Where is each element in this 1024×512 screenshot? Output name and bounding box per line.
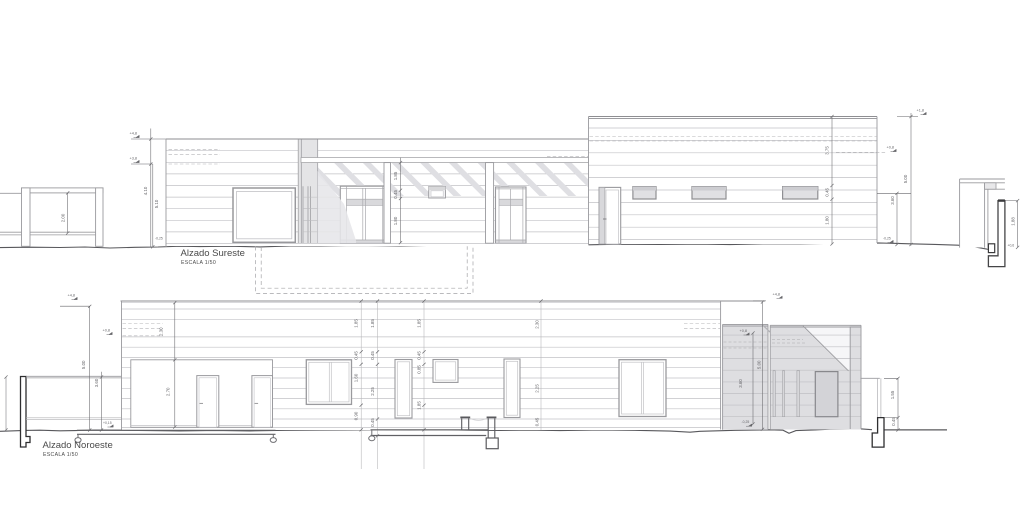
svg-text:1.80: 1.80 [393,216,398,225]
svg-text:+0,15: +0,15 [103,421,112,425]
svg-text:1.60: 1.60 [354,373,359,382]
svg-text:+0,8: +0,8 [887,146,895,150]
svg-text:1.88: 1.88 [1010,217,1015,226]
svg-text:0.45: 0.45 [370,418,375,427]
svg-text:2.30: 2.30 [158,327,163,336]
svg-text:+3,8: +3,8 [130,157,138,161]
svg-text:1.85: 1.85 [370,319,375,328]
svg-text:0.45: 0.45 [393,189,398,198]
svg-text:0.45: 0.45 [891,417,896,426]
svg-text:0.45: 0.45 [417,351,422,360]
svg-text:1.85: 1.85 [354,319,359,328]
svg-text:-0,25: -0,25 [155,237,163,241]
svg-text:+4,8: +4,8 [773,292,781,296]
svg-text:Alzado Noroeste: Alzado Noroeste [43,440,113,451]
svg-text:0.45: 0.45 [825,187,830,196]
svg-text:ESCALA 1/50: ESCALA 1/50 [181,260,216,266]
svg-text:0.85: 0.85 [417,365,422,374]
svg-text:-0,25: -0,25 [742,420,750,424]
svg-text:1.80: 1.80 [825,216,830,225]
svg-text:5.10: 5.10 [154,199,159,208]
svg-text:3.75: 3.75 [825,146,830,155]
svg-text:ESCALA 1/50: ESCALA 1/50 [43,452,78,458]
svg-text:Alzado Sureste: Alzado Sureste [181,248,245,259]
svg-text:2.00: 2.00 [61,213,66,222]
svg-text:2.30: 2.30 [534,320,539,329]
svg-text:3.60: 3.60 [890,196,895,205]
svg-text:2.70: 2.70 [166,387,171,396]
svg-text:-0,25: -0,25 [883,237,891,241]
svg-text:0.45: 0.45 [354,351,359,360]
svg-text:2.25: 2.25 [370,387,375,396]
svg-text:0.45: 0.45 [534,417,539,426]
svg-text:4.10: 4.10 [143,186,148,195]
svg-text:+4,8: +4,8 [68,294,76,298]
svg-text:+0,6: +0,6 [1008,243,1015,247]
svg-text:+0,8: +0,8 [103,329,111,333]
svg-text:1.85: 1.85 [393,171,398,180]
svg-text:5.00: 5.00 [81,360,86,369]
svg-text:3.60: 3.60 [738,379,743,388]
svg-text:+1,8: +1,8 [917,109,925,113]
svg-text:1.85: 1.85 [417,319,422,328]
svg-text:1.85: 1.85 [417,401,422,410]
svg-text:5.00: 5.00 [756,360,761,369]
svg-text:2.25: 2.25 [534,384,539,393]
svg-text:0.90: 0.90 [354,411,359,420]
svg-text:1.55: 1.55 [890,390,895,399]
svg-text:5.00: 5.00 [903,174,908,183]
svg-text:0.45: 0.45 [370,351,375,360]
svg-text:+0,8: +0,8 [740,329,748,333]
svg-text:3.60: 3.60 [94,378,99,387]
svg-text:+4,8: +4,8 [130,132,138,136]
